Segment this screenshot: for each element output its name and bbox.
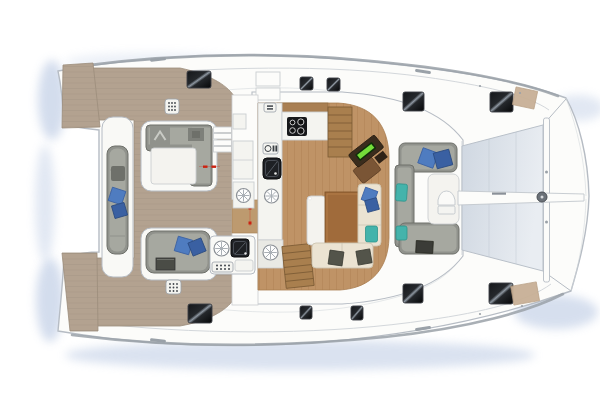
deck-hatch — [403, 284, 423, 303]
cooktop — [287, 117, 307, 136]
tray — [235, 260, 253, 271]
wetbar-locker — [233, 114, 246, 129]
round-sink-icon — [263, 245, 278, 260]
catamaran-deck-plan — [0, 0, 600, 400]
galley-sink — [263, 158, 281, 179]
teal-pillow — [396, 226, 407, 240]
bow-antislip-pad — [511, 282, 540, 305]
transom-platform-top — [62, 63, 100, 128]
deck-hatch — [327, 78, 340, 91]
deck-hatch — [187, 71, 211, 88]
aft-bench — [102, 117, 133, 277]
oven-icon — [263, 143, 278, 154]
door-marker — [249, 222, 252, 225]
control-panel — [212, 262, 233, 272]
blue-pillow — [365, 198, 380, 213]
olive-pillow — [328, 250, 344, 266]
headrest-cushion — [111, 166, 125, 181]
forward-seat-table — [428, 174, 459, 224]
aft-lounge-upper — [141, 121, 220, 191]
deck-hatch — [403, 92, 424, 111]
deck-hatch — [489, 283, 513, 304]
olive-pillow — [356, 249, 372, 265]
bowsprit-fitting — [492, 193, 506, 195]
deck-hatch — [300, 306, 312, 319]
deck-locker — [256, 88, 280, 100]
hull-stairs-bottom — [282, 244, 314, 289]
vent-icon — [264, 103, 276, 112]
teal-pillow — [366, 226, 378, 242]
grill — [231, 239, 249, 257]
round-sink-icon — [237, 189, 251, 203]
deck-hatch — [351, 306, 363, 320]
deck-hatch — [300, 77, 313, 90]
teal-pillow — [395, 184, 407, 202]
deck-plan-canvas — [0, 0, 600, 400]
aft-lounge-lower — [141, 228, 217, 280]
deck-locker — [256, 72, 280, 86]
salon — [258, 103, 394, 290]
vent-grid — [166, 280, 181, 294]
sunpad — [151, 148, 196, 184]
hull-stairs-top — [328, 107, 352, 157]
cockpit-tray — [416, 241, 434, 254]
round-sink-icon — [265, 189, 279, 203]
dinette-table — [325, 192, 360, 244]
dinette — [307, 184, 381, 268]
deck-hatch — [188, 304, 212, 323]
blue-pillow — [433, 149, 453, 169]
deck-hatch — [490, 92, 513, 112]
round-sink-icon — [214, 241, 229, 256]
vent-grid — [165, 99, 179, 114]
chaise-pad — [307, 196, 326, 245]
forward-cockpit — [395, 141, 462, 255]
